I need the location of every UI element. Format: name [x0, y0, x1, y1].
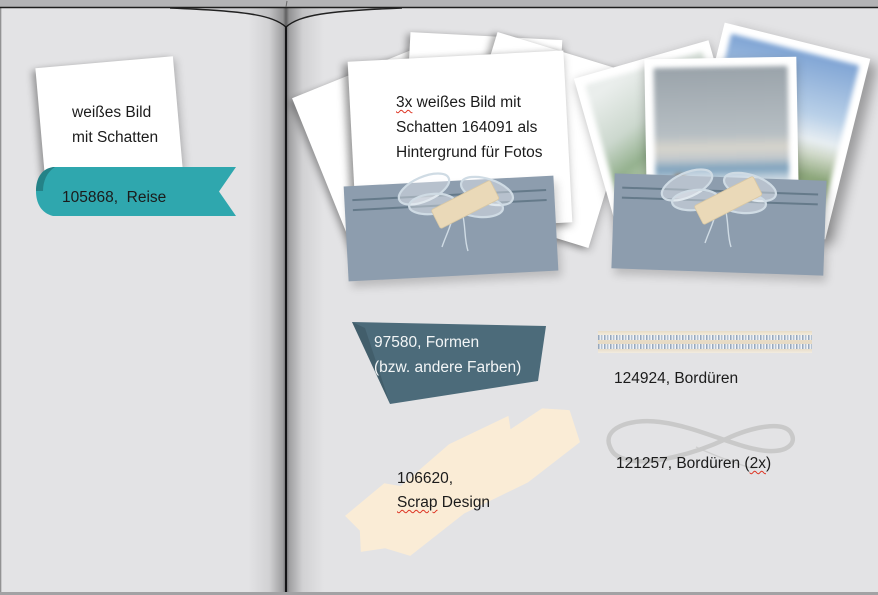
misspelled-word: Scrap	[397, 494, 438, 511]
ribbon-bow-icon	[392, 161, 522, 253]
chain-row	[598, 344, 812, 349]
lace-border-icon[interactable]	[598, 331, 812, 353]
scrap-design-strip[interactable]	[336, 381, 592, 578]
chain-row	[598, 335, 812, 340]
misspelled-word: 3x	[396, 94, 412, 111]
book-spine-line	[285, 26, 287, 592]
card-stack-label: 3x weißes Bild mit Schatten 164091 als H…	[396, 90, 596, 165]
white-card-line2: mit Schatten	[72, 125, 158, 150]
card-stack-line2: Schatten 164091 als	[396, 115, 596, 140]
formen-label: 97580, Formen (bzw. andere Farben)	[374, 330, 521, 380]
white-card-label: weißes Bild mit Schatten	[72, 100, 158, 150]
formen-line1: 97580, Formen	[374, 330, 521, 355]
scrap-label-line1: 106620,	[397, 466, 453, 491]
teal-ribbon-label: 105868, Reise	[62, 185, 166, 210]
scrap-label-line2: Scrap Design	[397, 490, 490, 515]
misspelled-word: 2x	[750, 455, 766, 472]
ribbon-bow-icon	[655, 157, 785, 249]
card-stack-line1: 3x weißes Bild mit	[396, 90, 596, 115]
white-card-line1: weißes Bild	[72, 100, 158, 125]
book-left-edge	[0, 8, 2, 595]
border-strip-label: 124924, Bordüren	[614, 366, 738, 391]
flourish-label: 121257, Bordüren (2x)	[616, 451, 771, 476]
formen-line2: (bzw. andere Farben)	[374, 355, 521, 380]
